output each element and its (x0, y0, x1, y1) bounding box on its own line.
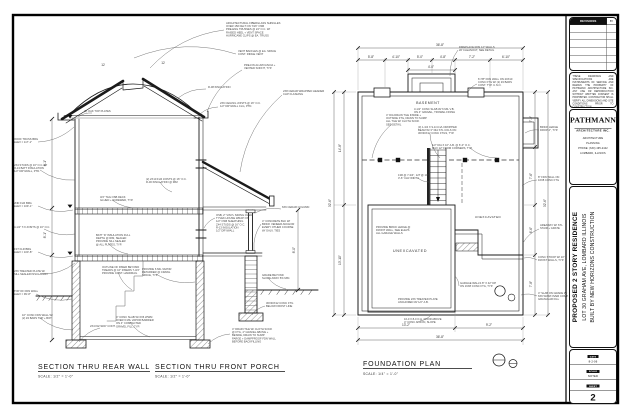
plan-sump-and-bubbles (493, 286, 517, 368)
section-roof (58, 79, 208, 123)
callout-note: 2ND FLR BRGELEV = 109'-1" (14, 201, 73, 211)
dimension-label: 5'-0" (417, 55, 423, 59)
sheet-info-row: DATE 8-2-06 (570, 350, 616, 365)
svg-text:BATT 'R' INSULATION FULLDEPTH: BATT 'R' INSULATION FULLDEPTH @ RIM, SEA… (96, 233, 131, 246)
dimension-label: 13'-10" (338, 255, 342, 265)
svg-text:ARCHITECTURAL FIBERGLASS SHING: ARCHITECTURAL FIBERGLASS SHINGLESOVER 15… (226, 21, 281, 37)
svg-text:BRICK LEDGEDROP 4", TYP.: BRICK LEDGEDROP 4", TYP. (540, 125, 558, 132)
revision-row (570, 40, 616, 48)
dimension-label: 7'-2" (529, 116, 533, 122)
revisions-header: REVISIONS BY (570, 18, 616, 25)
callout-note: (3) 1-3/4 X 9-1/4 LVL DROPPEDBEAM W/ 3" … (418, 125, 457, 158)
svg-text:10" CONC FDN WALL W/(2) #4 BAR: 10" CONC FDN WALL W/(2) #4 BARS TOP + BO… (22, 313, 53, 320)
svg-text:GARAGE WALLS 8" X 42" DPON 16X: GARAGE WALLS 8" X 42" DPON 16X8 CONC FTG… (460, 281, 496, 288)
svg-text:4" CONC SLAB W/ 6X6 WWMOVER 6: 4" CONC SLAB W/ 6X6 WWMOVER 6 MIL VAPOR … (116, 315, 154, 328)
dimension-label: 9'-2" (486, 323, 492, 327)
plan-beam-line (362, 158, 519, 203)
callout-note: 4" CONCRETE BLK W/BRICK VENEER ANCHOREVE… (254, 219, 294, 250)
dimension-label: 7'-2" (469, 55, 475, 59)
date-value: 8-2-06 (570, 360, 616, 363)
callout-note: 4" SLAB ON GRADE W/6X6 WWM OVER COMP.GRA… (521, 291, 569, 301)
svg-text:ROOF TRUSS BRGELEV = 117'-1": ROOF TRUSS BRGELEV = 117'-1" (14, 137, 38, 144)
svg-text:1/2" DIA X 10" A.B. @ 6'-0" O.: 1/2" DIA X 10" A.B. @ 6'-0" O.C.MAX 12" … (432, 143, 473, 150)
callout-note: 3/4" T&G OSB DECKGLUED + SCREWED, TYP. (100, 195, 140, 208)
project-line: PROPOSED 2 STORY RESIDENCE (572, 191, 579, 343)
sheet-info-box: DATE 8-2-06 SCALE NOTED SHEET 2 FIVE OF (569, 349, 617, 404)
firm-logo-box: PATHMANN ARCHITECTURE INC. ARCHITECTURE … (569, 109, 617, 185)
svg-text:8" FDN WALL ON16X8 CONC FTG: 8" FDN WALL ON16X8 CONC FTG (538, 175, 559, 182)
svg-text:3-1/2" CONC SLAB W/ 6 MIL V.B.: 3-1/2" CONC SLAB W/ 6 MIL V.B.ON 4" GRAV… (414, 107, 455, 114)
callout-note: CONC STOOP W/ 10"FROST WALLS, TYP. (524, 255, 565, 262)
callout-note: 4" CONC SLAB W/ 6X6 WWMOVER 6 MIL VAPOR … (116, 315, 154, 337)
dimension-label: 13'-2" (402, 323, 410, 327)
foundation-plan-scale: SCALE: 1/4" = 1'-0" (363, 372, 399, 376)
dimension-label: 32'-6" (543, 199, 547, 207)
dimension-label: 8'-0" (292, 247, 296, 253)
rear-wall-title: SECTION THRU REAR WALL (38, 364, 150, 371)
svg-text:4" CONCRETE BLK W/BRICK VENEER: 4" CONCRETE BLK W/BRICK VENEER ANCHOREVE… (262, 219, 294, 232)
dimension-label: 4'-8" (440, 55, 446, 59)
svg-text:4" SLAB ON GRADE W/6X6 WWM OVE: 4" SLAB ON GRADE W/6X6 WWM OVER COMP.GRA… (538, 291, 569, 301)
firm-line: PLANNING (570, 143, 616, 146)
svg-text:1ST FLR BRGELEV = 100'-8": 1ST FLR BRGELEV = 100'-8" (14, 247, 32, 254)
unexcavated-label-2: UNEXCAVATED (475, 215, 502, 219)
firm-line: ARCHITECTURE (570, 138, 616, 141)
callout-note: 4" DIA DRAIN TILE INSIDE +OUTSIDE FTG, D… (372, 113, 427, 158)
svg-text:2X4 KEYWAY CONT.: 2X4 KEYWAY CONT. (90, 324, 116, 328)
svg-text:4" DIA DRAIN TILE INSIDE +OUTS: 4" DIA DRAIN TILE INSIDE +OUTSIDE FTG, D… (386, 113, 427, 126)
callout-note: 13R @ 7-3/4", 12T @ 10"3'-6" CLR WIDTH (398, 173, 429, 182)
callout-note: 10" CONC FDN WALL W/(2) #4 BARS TOP + BO… (22, 313, 73, 330)
callout-note: OSB, 2" VINYL SIDING OVERTYVEK HOUSE WRA… (204, 213, 252, 233)
project-title-box: PROPOSED 2 STORY RESIDENCE LOT 30 GRAHAM… (569, 186, 617, 348)
svg-text:FIREPLACE FDN 12" WALLSW/ CLEA: FIREPLACE FDN 12" WALLSW/ CLEANOUT, SEE … (459, 45, 495, 52)
svg-text:PROVIDE 6 MIL VAPORRETARDER @: PROVIDE 6 MIL VAPORRETARDER @ CRAWLSPACE… (142, 267, 171, 277)
porch-structure (203, 162, 318, 321)
callout-note: R-38 INSULATION (178, 85, 231, 98)
svg-text:VENT BAFFLES @ EA. SPACECONT.: VENT BAFFLES @ EA. SPACECONT. RIDGE VENT (238, 49, 276, 56)
rear-wall-scale: SCALE: 1/2" = 1'-0" (38, 375, 74, 379)
date-label: DATE (587, 355, 598, 358)
callout-note: BATT 'R' INSULATION FULLDEPTH @ RIM, SEA… (96, 233, 131, 254)
svg-text:CONC STOOP W/ 10"FROST WALLS,: CONC STOOP W/ 10"FROST WALLS, TYP. (538, 255, 565, 262)
svg-text:PROVIDE 2X6 TREATED PLATEANCHO: PROVIDE 2X6 TREATED PLATEANCHORED W/ 1/2… (398, 297, 438, 304)
callout-note: ROOF TRUSS BRGELEV = 117'-1" (14, 127, 74, 144)
sheet-number: 2 (570, 391, 616, 404)
callout-note: VENT BAFFLES @ EA. SPACECONT. RIDGE VENT (134, 47, 276, 58)
dimension-label: 36'-8" (436, 43, 444, 47)
front-porch-scale: SCALE: 1/2" = 1'-0" (155, 375, 191, 379)
svg-text:4" DRAIN TILE W/ CLOTH SOCK@ F: 4" DRAIN TILE W/ CLOTH SOCK@ FTG, 4" GRA… (232, 327, 276, 343)
scale-label: SCALE (586, 370, 599, 373)
dimension-label: 7'-6" (529, 173, 533, 179)
firm-subtitle: ARCHITECTURE INC. (575, 129, 612, 133)
callout-note: PROVIDE 2X6 TREATED PLATEANCHORED W/ 1/2… (398, 297, 438, 304)
titleblock: REVISIONS BY THESE DRAWINGS AND SPECIFIC… (566, 15, 620, 403)
svg-text:2X8 CEDAR WRAPPED HEADERCLIP F: 2X8 CEDAR WRAPPED HEADERCLIP FLASHING (283, 89, 324, 96)
revisions-table: REVISIONS BY (569, 17, 617, 71)
svg-text:30X30X12 CONC FTGBELOW FROST L: 30X30X12 CONC FTGBELOW FROST LINE (266, 301, 293, 308)
disclaimer-text: THESE DRAWINGS AND SPECIFICATIONS ARE IN… (570, 73, 616, 107)
svg-text:TOP OF FDN WALLELEV = 99'-8": TOP OF FDN WALLELEV = 99'-8" (14, 289, 39, 296)
sheet-info-row: SHEET (570, 380, 616, 391)
callout-note: PROVIDE BRICK LEDGE @FRONT WALL, SEE ELE… (376, 225, 411, 235)
callout-note: ARCHITECTURAL FIBERGLASS SHINGLESOVER 15… (150, 21, 281, 68)
project-line: LOT 30 GRAHAM AVE, LOMBARD ILLINOIS (582, 191, 588, 343)
callout-note: TOP OF FDN WALLELEV = 99'-8" (14, 289, 72, 300)
callouts-layer: ARCHITECTURAL FIBERGLASS SHINGLESOVER 15… (14, 21, 569, 344)
callout-note: (2) OAK TOP PLATES (78, 109, 111, 117)
svg-text:2X6 TREATED PLATE W/SILL SEALE: 2X6 TREATED PLATE W/SILL SEALER INSULATI… (14, 269, 48, 276)
callout-note: 2X6 CEILING JOISTS @ 16" O.C.1/2" DRYWAL… (200, 101, 261, 114)
revision-row (570, 25, 616, 33)
unexcavated-label-1: UNEXCAVATED (393, 249, 427, 253)
callout-note: GRADE BEYONDSLOPE AWAY 5% MIN. (262, 273, 290, 289)
section-dim-line (50, 115, 72, 342)
plan-stairs (427, 148, 446, 205)
front-porch-title: SECTION THRU FRONT PORCH (155, 364, 280, 371)
svg-text:OUTLINE OF RISER BEYONDTREADS: OUTLINE OF RISER BEYONDTREADS @ 10" RISE… (102, 265, 140, 275)
callout-note: 6X6 CEDAR COLUMN (255, 205, 309, 213)
revisions-label: REVISIONS (570, 18, 607, 25)
dimension-label: 4'-0" (428, 65, 434, 69)
sheet-info-row: SCALE NOTED (570, 365, 616, 380)
dimension-label: 32'-6" (328, 199, 332, 207)
section-walls (75, 117, 206, 256)
callout-note: 8" FDN WALL ON16X8 CONC FTG (522, 175, 559, 186)
svg-text:OSB, 2" VINYL SIDING OVERTYVEK: OSB, 2" VINYL SIDING OVERTYVEK HOUSE WRA… (216, 213, 252, 233)
firm-line: PHONE: (630) 495-2442 (570, 148, 616, 151)
dimension-label: 8'-1" (43, 160, 47, 166)
drawing-canvas: SECTION THRU REAR WALL SCALE: 1/2" = 1'-… (0, 0, 624, 416)
svg-text:GRADE BEYONDSLOPE AWAY 5% MIN.: GRADE BEYONDSLOPE AWAY 5% MIN. (262, 273, 290, 280)
svg-text:2ND FLR BRGELEV = 109'-1": 2ND FLR BRGELEV = 109'-1" (14, 201, 32, 208)
dimension-label: 7'-8" (529, 281, 533, 287)
firm-line: LOMBARD, ILLINOIS (570, 153, 616, 156)
firm-name: PATHMANN (570, 116, 616, 125)
callout-note: FIREPLACE FDN 12" WALLSW/ CLEANOUT, SEE … (450, 45, 495, 76)
svg-text:6X6 CEDAR COLUMN: 6X6 CEDAR COLUMN (282, 205, 309, 209)
revision-row (570, 63, 616, 71)
svg-text:(3) 1-3/4 X 9-1/4 LVL DROPPEDB: (3) 1-3/4 X 9-1/4 LVL DROPPEDBEAM W/ 3" … (418, 125, 457, 135)
dimension-label: 6'-6" (529, 227, 533, 233)
basement-label: BASEMENT (416, 101, 440, 105)
sheet: SECTION THRU REAR WALL SCALE: 1/2" = 1'-… (0, 0, 624, 416)
scale-value: NOTED (570, 375, 616, 378)
section-floors (75, 208, 203, 261)
dimension-label: 14'-8" (338, 144, 342, 152)
svg-text:3/4" T&G OSB DECKGLUED + SCREW: 3/4" T&G OSB DECKGLUED + SCREWED, TYP. (100, 195, 133, 202)
callout-note: (2) 2X10 FLR JOISTS @ 16" O.C.R-30 INSUL… (146, 177, 187, 192)
revision-row (570, 33, 616, 41)
dimension-label: 6'-10" (502, 55, 510, 59)
svg-text:13R @ 7-3/4", 12T @ 10"3'-6" C: 13R @ 7-3/4", 12T @ 10"3'-6" CLR WIDTH (398, 173, 429, 180)
revisions-by-label: BY (607, 18, 617, 25)
callout-note: 4" DRAIN TILE W/ CLOTH SOCK@ FTG, 4" GRA… (208, 327, 276, 344)
svg-text:(2) 2X10 FLR JOISTS @ 16" O.C.: (2) 2X10 FLR JOISTS @ 16" O.C.R-30 INSUL… (146, 177, 187, 184)
dimension-label: 12 (161, 61, 165, 65)
svg-text:8 7/8" FDN WALL ON 20X10CONC F: 8 7/8" FDN WALL ON 20X10CONC FTG W/ (2) … (478, 77, 513, 87)
svg-text:R-38 INSULATION: R-38 INSULATION (208, 85, 231, 89)
sheet-label: SHEET (586, 385, 599, 388)
svg-text:PRE-FIN ALUM FASCIA +VENTED SO: PRE-FIN ALUM FASCIA +VENTED SOFFIT, TYP. (244, 63, 276, 70)
dimension-label: 12 (101, 63, 105, 67)
dimension-label: 5'-8" (368, 55, 374, 59)
dimension-label: 4'-10" (392, 55, 400, 59)
revision-row (570, 55, 616, 63)
svg-text:AREAWAY W/ STLSTAIR + GRATE: AREAWAY W/ STLSTAIR + GRATE (540, 223, 563, 230)
dimension-label: 8'-1" (43, 232, 47, 238)
svg-text:9-1/2" TJI JOISTS @ 16" O.C.: 9-1/2" TJI JOISTS @ 16" O.C. (14, 225, 50, 229)
disclaimer-box: THESE DRAWINGS AND SPECIFICATIONS ARE IN… (569, 72, 617, 108)
dimension-label: 36'-8" (436, 335, 444, 339)
revision-row (570, 48, 616, 56)
callout-note: PROVIDE 6 MIL VAPORRETARDER @ CRAWLSPACE… (142, 267, 195, 283)
svg-text:PROVIDE BRICK LEDGE @FRONT WAL: PROVIDE BRICK LEDGE @FRONT WALL, SEE ELE… (376, 225, 411, 235)
svg-text:(2) OAK TOP PLATES: (2) OAK TOP PLATES (84, 109, 111, 113)
svg-text:2X6 CEILING JOISTS @ 16" O.C.1: 2X6 CEILING JOISTS @ 16" O.C.1/2" DRYWAL… (220, 101, 261, 108)
callout-note: GARAGE WALLS 8" X 42" DPON 16X8 CONC FTG… (455, 276, 496, 288)
project-line: BUILT BY NEW HORIZONS CONSTRUCTION (590, 191, 596, 343)
foundation-plan-title: FOUNDATION PLAN (363, 361, 441, 368)
callout-note: 3-1/2" CONC SLAB W/ 6 MIL V.B.ON 4" GRAV… (414, 107, 455, 114)
callout-note: 2X6 TREATED PLATE W/SILL SEALER INSULATI… (14, 263, 75, 276)
callout-note: 1ST FLR BRGELEV = 100'-8" (14, 247, 73, 257)
